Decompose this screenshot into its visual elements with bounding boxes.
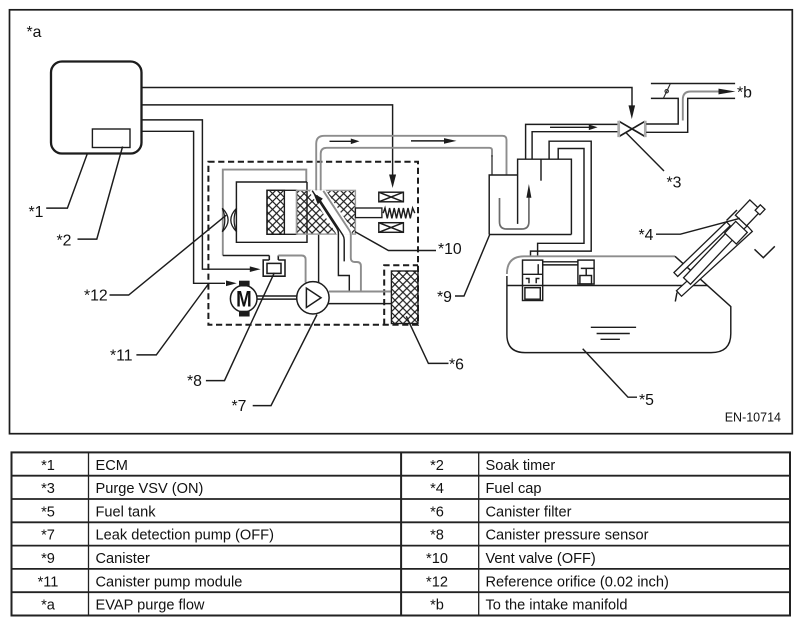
svg-text:Canister: Canister <box>96 551 150 567</box>
svg-text:EVAP purge flow: EVAP purge flow <box>96 598 205 614</box>
svg-text:*1: *1 <box>41 458 55 474</box>
svg-text:*11: *11 <box>38 574 59 590</box>
svg-text:Canister filter: Canister filter <box>486 504 572 520</box>
svg-text:*8: *8 <box>187 373 202 390</box>
svg-text:Canister pressure sensor: Canister pressure sensor <box>486 528 649 544</box>
svg-text:*7: *7 <box>41 528 55 544</box>
svg-text:*a: *a <box>27 24 42 41</box>
svg-text:ECM: ECM <box>96 458 128 474</box>
svg-text:*b: *b <box>430 598 444 614</box>
svg-text:*9: *9 <box>437 289 452 306</box>
svg-text:*3: *3 <box>41 481 55 497</box>
svg-text:*12: *12 <box>84 288 108 305</box>
svg-text:Canister pump module: Canister pump module <box>96 574 243 590</box>
svg-text:*a: *a <box>41 598 56 614</box>
svg-text:*2: *2 <box>430 458 444 474</box>
svg-text:Vent valve (OFF): Vent valve (OFF) <box>486 551 596 567</box>
svg-text:Fuel tank: Fuel tank <box>96 504 157 520</box>
svg-text:*12: *12 <box>426 574 448 590</box>
svg-text:*5: *5 <box>639 392 654 409</box>
svg-text:EN-10714: EN-10714 <box>725 411 781 425</box>
svg-text:To the intake manifold: To the intake manifold <box>486 598 628 614</box>
svg-text:*10: *10 <box>426 551 448 567</box>
svg-text:*6: *6 <box>449 357 464 374</box>
svg-text:Reference orifice (0.02 inch): Reference orifice (0.02 inch) <box>486 574 669 590</box>
svg-text:*1: *1 <box>29 204 44 221</box>
svg-text:*10: *10 <box>438 241 462 258</box>
svg-text:*2: *2 <box>57 233 72 250</box>
svg-text:*5: *5 <box>41 504 55 520</box>
svg-text:*8: *8 <box>430 528 444 544</box>
svg-text:*6: *6 <box>430 504 444 520</box>
svg-text:*4: *4 <box>430 481 444 497</box>
svg-text:*9: *9 <box>41 551 55 567</box>
svg-text:*3: *3 <box>667 175 682 192</box>
svg-text:M: M <box>236 286 252 311</box>
svg-text:Soak timer: Soak timer <box>486 458 556 474</box>
svg-text:*11: *11 <box>110 348 133 365</box>
svg-text:Leak detection pump (OFF): Leak detection pump (OFF) <box>96 528 274 544</box>
svg-text:Purge VSV (ON): Purge VSV (ON) <box>96 481 204 497</box>
svg-text:*b: *b <box>737 85 752 102</box>
svg-text:*4: *4 <box>639 227 654 244</box>
svg-text:*7: *7 <box>232 398 247 415</box>
svg-text:Fuel cap: Fuel cap <box>486 481 542 497</box>
